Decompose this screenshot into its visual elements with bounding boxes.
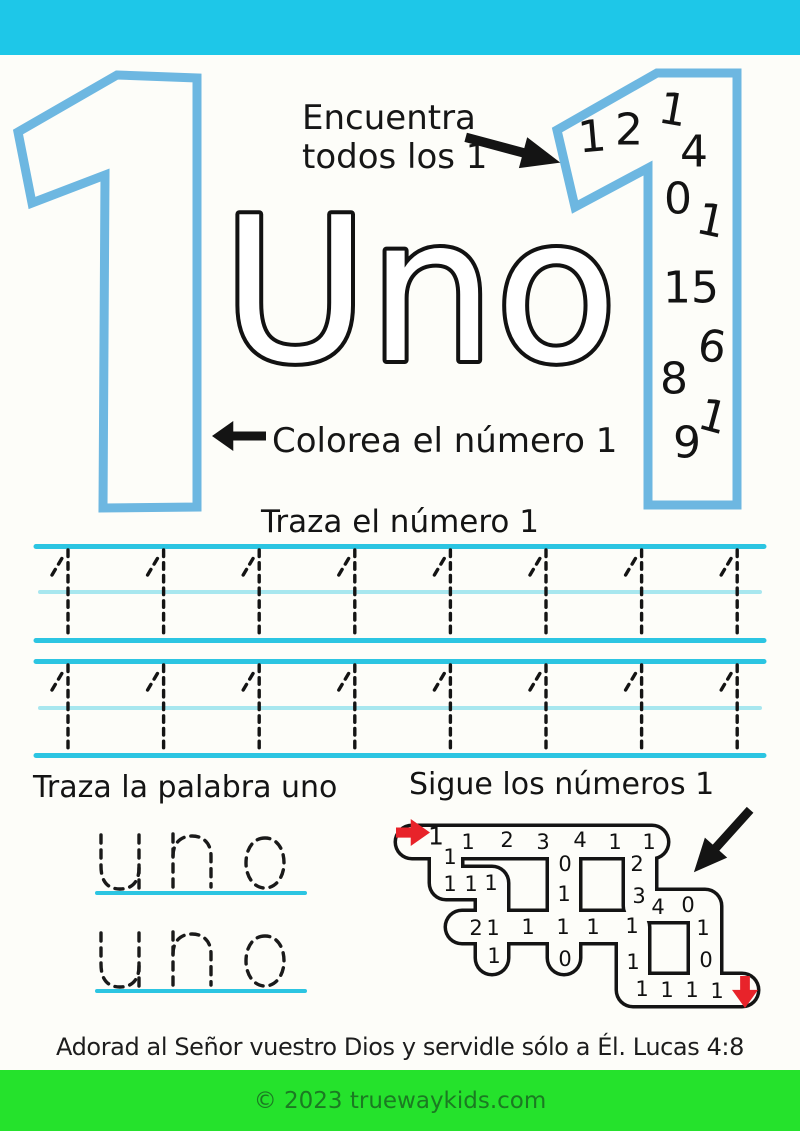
maze-number: 1 bbox=[484, 871, 497, 895]
trace-letter-u[interactable] bbox=[97, 832, 143, 892]
maze-number: 2 bbox=[500, 828, 513, 852]
trace-letter-o[interactable] bbox=[242, 930, 288, 990]
trace-numeral-flag bbox=[339, 669, 352, 690]
maze-number: 1 bbox=[487, 944, 500, 968]
word-underline bbox=[95, 891, 307, 895]
maze-number: 0 bbox=[681, 893, 694, 917]
maze-number: 3 bbox=[536, 830, 549, 854]
maze-number: 1 bbox=[696, 916, 709, 940]
maze-number: 1 bbox=[660, 978, 673, 1002]
maze-number: 1 bbox=[428, 822, 444, 851]
trace-numeral-flag bbox=[721, 669, 734, 690]
maze-number: 0 bbox=[699, 948, 712, 972]
trace-numeral-flag bbox=[148, 554, 161, 575]
maze-number: 1 bbox=[556, 915, 569, 939]
maze-start-arrow-icon bbox=[396, 819, 430, 846]
maze-number: 1 bbox=[626, 950, 639, 974]
trace-numeral-flag bbox=[626, 669, 639, 690]
trace-numeral-flag bbox=[339, 554, 352, 575]
maze-number: 1 bbox=[642, 830, 655, 854]
maze-heading: Sigue los números 1 bbox=[409, 767, 714, 802]
maze-number: 1 bbox=[557, 882, 570, 906]
maze-number: 1 bbox=[685, 978, 698, 1002]
maze-number: 1 bbox=[486, 916, 499, 940]
maze-number: 1 bbox=[635, 977, 648, 1001]
maze-number: 1 bbox=[625, 914, 638, 938]
trace-word-heading: Traza la palabra uno bbox=[33, 770, 337, 805]
trace-numeral-flag bbox=[148, 669, 161, 690]
trace-numeral-flag bbox=[243, 669, 256, 690]
copyright-text: © 2023 truewaykids.com bbox=[254, 1088, 547, 1114]
maze-number: 4 bbox=[651, 895, 664, 919]
maze-number: 1 bbox=[710, 979, 723, 1003]
maze-number: 0 bbox=[558, 852, 571, 876]
maze-number: 1 bbox=[586, 915, 599, 939]
trace-numeral-flag bbox=[721, 554, 734, 575]
word-underline bbox=[95, 989, 307, 993]
maze-number: 4 bbox=[573, 828, 586, 852]
trace-numeral-flag bbox=[434, 554, 447, 575]
trace-numeral-flag bbox=[52, 669, 65, 690]
trace-letter-o[interactable] bbox=[242, 832, 288, 892]
maze-number: 3 bbox=[632, 884, 645, 908]
worksheet-page: 121401156819 Encuentra todos los 1 Uno C… bbox=[0, 0, 800, 1131]
maze-number: 1 bbox=[464, 872, 477, 896]
verse-text: Adorad al Señor vuestro Dios y servidle … bbox=[0, 1033, 800, 1061]
trace-numeral-flag bbox=[530, 554, 543, 575]
trace-numeral-flag bbox=[243, 554, 256, 575]
maze-end-arrow-icon bbox=[732, 976, 758, 1008]
maze-number: 1 bbox=[461, 830, 474, 854]
trace-numeral-flag bbox=[434, 669, 447, 690]
maze-number: 0 bbox=[558, 947, 571, 971]
trace-letter-n[interactable] bbox=[169, 928, 215, 988]
maze-number: 1 bbox=[443, 845, 456, 869]
trace-letter-u[interactable] bbox=[97, 930, 143, 990]
trace-numeral-flag bbox=[530, 669, 543, 690]
maze-number: 1 bbox=[608, 830, 621, 854]
footer-bar: © 2023 truewaykids.com bbox=[0, 1070, 800, 1131]
trace-numeral-flag bbox=[626, 554, 639, 575]
trace-letter-n[interactable] bbox=[169, 830, 215, 890]
maze-number: 2 bbox=[630, 852, 643, 876]
trace-numeral-flag bbox=[52, 554, 65, 575]
maze-number: 1 bbox=[443, 872, 456, 896]
maze-number: 2 bbox=[469, 916, 482, 940]
maze-number: 1 bbox=[521, 915, 534, 939]
